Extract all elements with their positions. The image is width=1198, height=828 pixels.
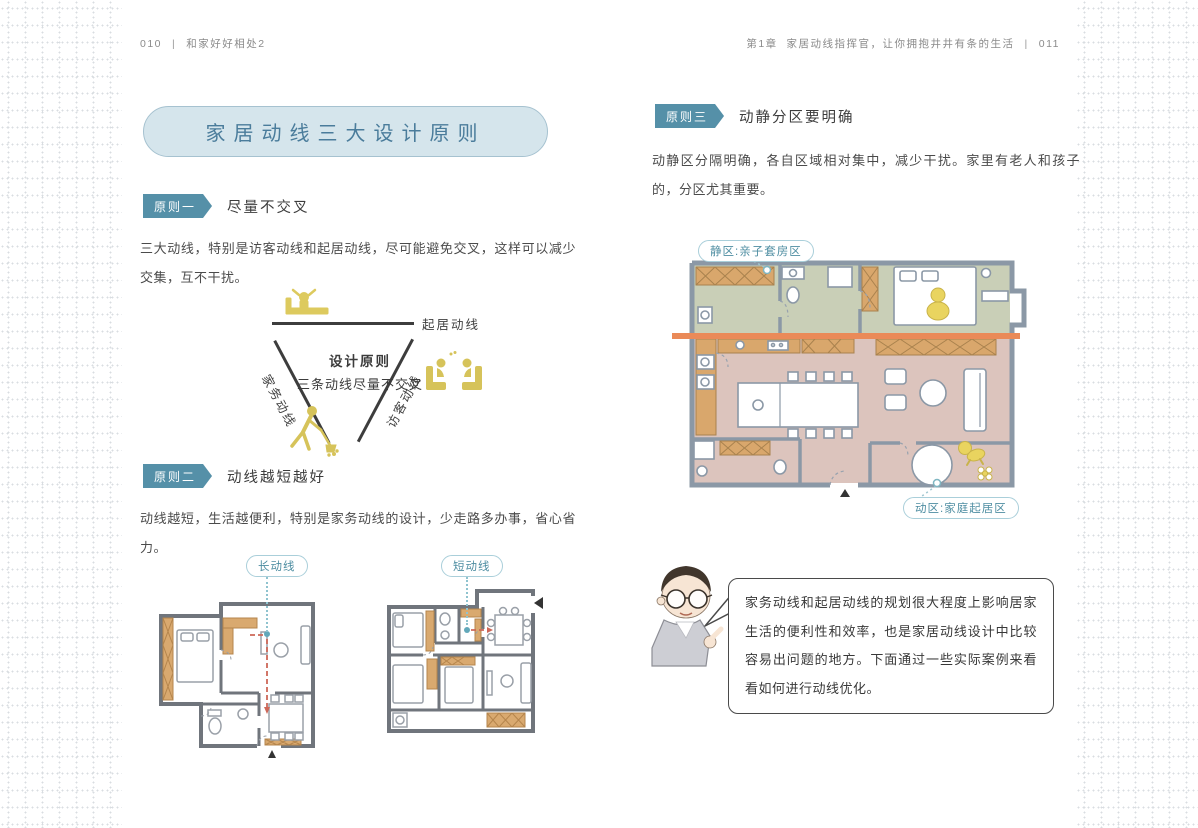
right-page-header: 第1章 家居动线指挥官，让你拥抱井井有条的生活|011 — [652, 36, 1060, 51]
bed-person-icon — [282, 288, 334, 320]
floorplan-long-route — [155, 598, 320, 766]
header-separator: | — [1025, 38, 1029, 50]
diagram-center-subtitle: 三条动线尽量不交叉 — [278, 374, 442, 393]
advisor-speech-bubble: 家务动线和起居动线的规划很大程度上影响居家生活的便利性和效率，也是家居动线设计中… — [728, 578, 1054, 714]
principle-1-title: 尽量不交叉 — [227, 196, 310, 217]
book-title: 和家好好相处2 — [186, 38, 265, 50]
diagram-center-title: 设计原则 — [300, 350, 420, 370]
vacuuming-person-icon — [282, 404, 340, 458]
quiet-leader-dot — [764, 267, 771, 274]
active-leader-dot — [934, 480, 941, 487]
header-separator: | — [172, 38, 176, 50]
left-page-number: 010 — [140, 38, 162, 50]
chapter-number: 第1章 — [746, 38, 777, 50]
short-route-leader — [466, 577, 468, 625]
entry-arrow — [534, 597, 543, 609]
principle-1-badge: 原则一 — [143, 194, 212, 218]
principle-3-title: 动静分区要明确 — [739, 106, 855, 127]
long-route-tag: 长动线 — [246, 555, 308, 577]
principle-2-badge: 原则二 — [143, 464, 212, 488]
floorplan-short-route — [383, 585, 545, 740]
section-principle-1: 原则一 尽量不交叉 — [143, 194, 310, 218]
route-start-dot — [464, 627, 470, 633]
traffic-line-triangle-diagram: 起居动线 家务动线 访客动线 设计原则 三条动线尽量不交叉 — [230, 292, 488, 462]
long-route-leader — [266, 577, 268, 632]
quiet-zone-tag: 静区:亲子套房区 — [698, 240, 814, 262]
active-zone-tag: 动区:家庭起居区 — [903, 497, 1019, 519]
principle-2-title: 动线越短越好 — [227, 466, 326, 487]
living-line — [272, 322, 414, 325]
page-title: 家居动线三大设计原则 — [143, 106, 548, 157]
advisor-speech-text: 家务动线和起居动线的规划很大程度上影响居家生活的便利性和效率，也是家居动线设计中… — [745, 595, 1037, 696]
principle-3-badge: 原则三 — [655, 104, 724, 128]
living-line-label: 起居动线 — [422, 314, 480, 333]
short-route-tag: 短动线 — [441, 555, 503, 577]
entry-arrow — [840, 489, 850, 497]
right-page-number: 011 — [1039, 38, 1060, 50]
floorplan-zoning — [680, 233, 1032, 525]
book-spread: 010|和家好好相处2 第1章 家居动线指挥官，让你拥抱井井有条的生活|011 … — [0, 0, 1198, 828]
chapter-title: 家居动线指挥官，让你拥抱井井有条的生活 — [787, 38, 1015, 50]
dotted-margin-left — [0, 0, 122, 828]
dotted-margin-right — [1076, 0, 1198, 828]
section-principle-2: 原则二 动线越短越好 — [143, 464, 326, 488]
guests-on-sofa-icon — [424, 350, 484, 396]
principle-1-body: 三大动线，特别是访客动线和起居动线，尽可能避免交叉，这样可以减少交集，互不干扰。 — [140, 234, 576, 293]
principle-2-body: 动线越短，生活越便利，特别是家务动线的设计，少走路多办事，省心省力。 — [140, 504, 576, 563]
entry-arrow — [268, 750, 276, 758]
principle-3-body: 动静区分隔明确，各自区域相对集中，减少干扰。家里有老人和孩子的，分区尤其重要。 — [652, 146, 1080, 205]
section-principle-3: 原则三 动静分区要明确 — [655, 104, 855, 128]
left-page-header: 010|和家好好相处2 — [140, 36, 266, 51]
